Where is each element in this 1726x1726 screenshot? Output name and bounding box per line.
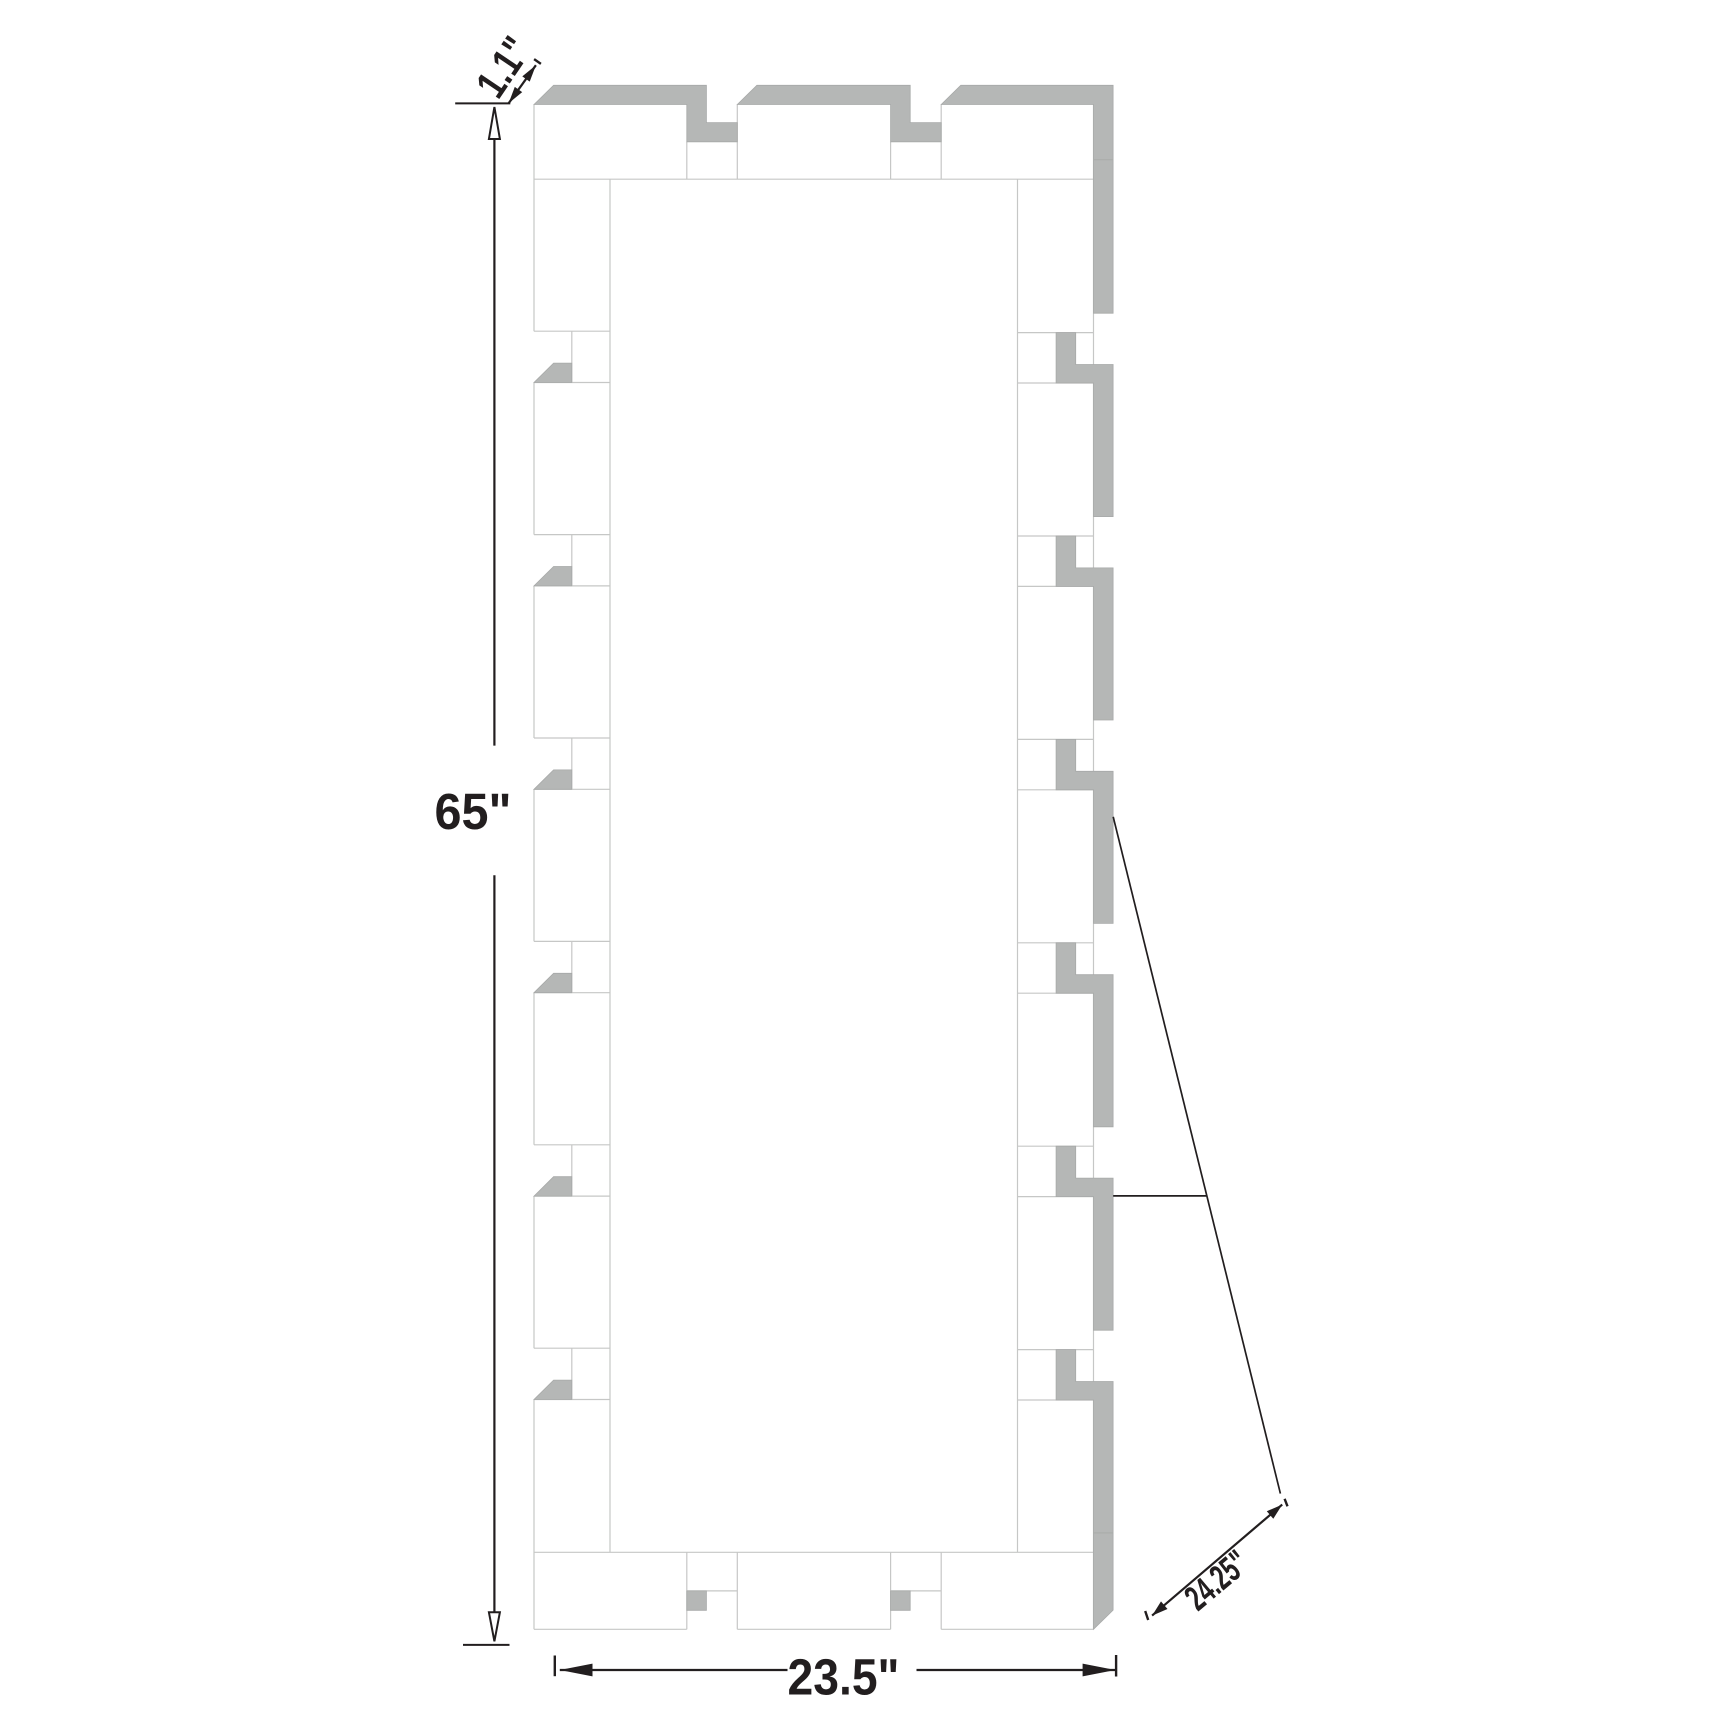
svg-text:24.25": 24.25" [1176,1542,1256,1618]
svg-text:65": 65" [435,783,512,840]
svg-text:23.5": 23.5" [788,1648,900,1705]
svg-text:1.1": 1.1" [467,28,541,106]
